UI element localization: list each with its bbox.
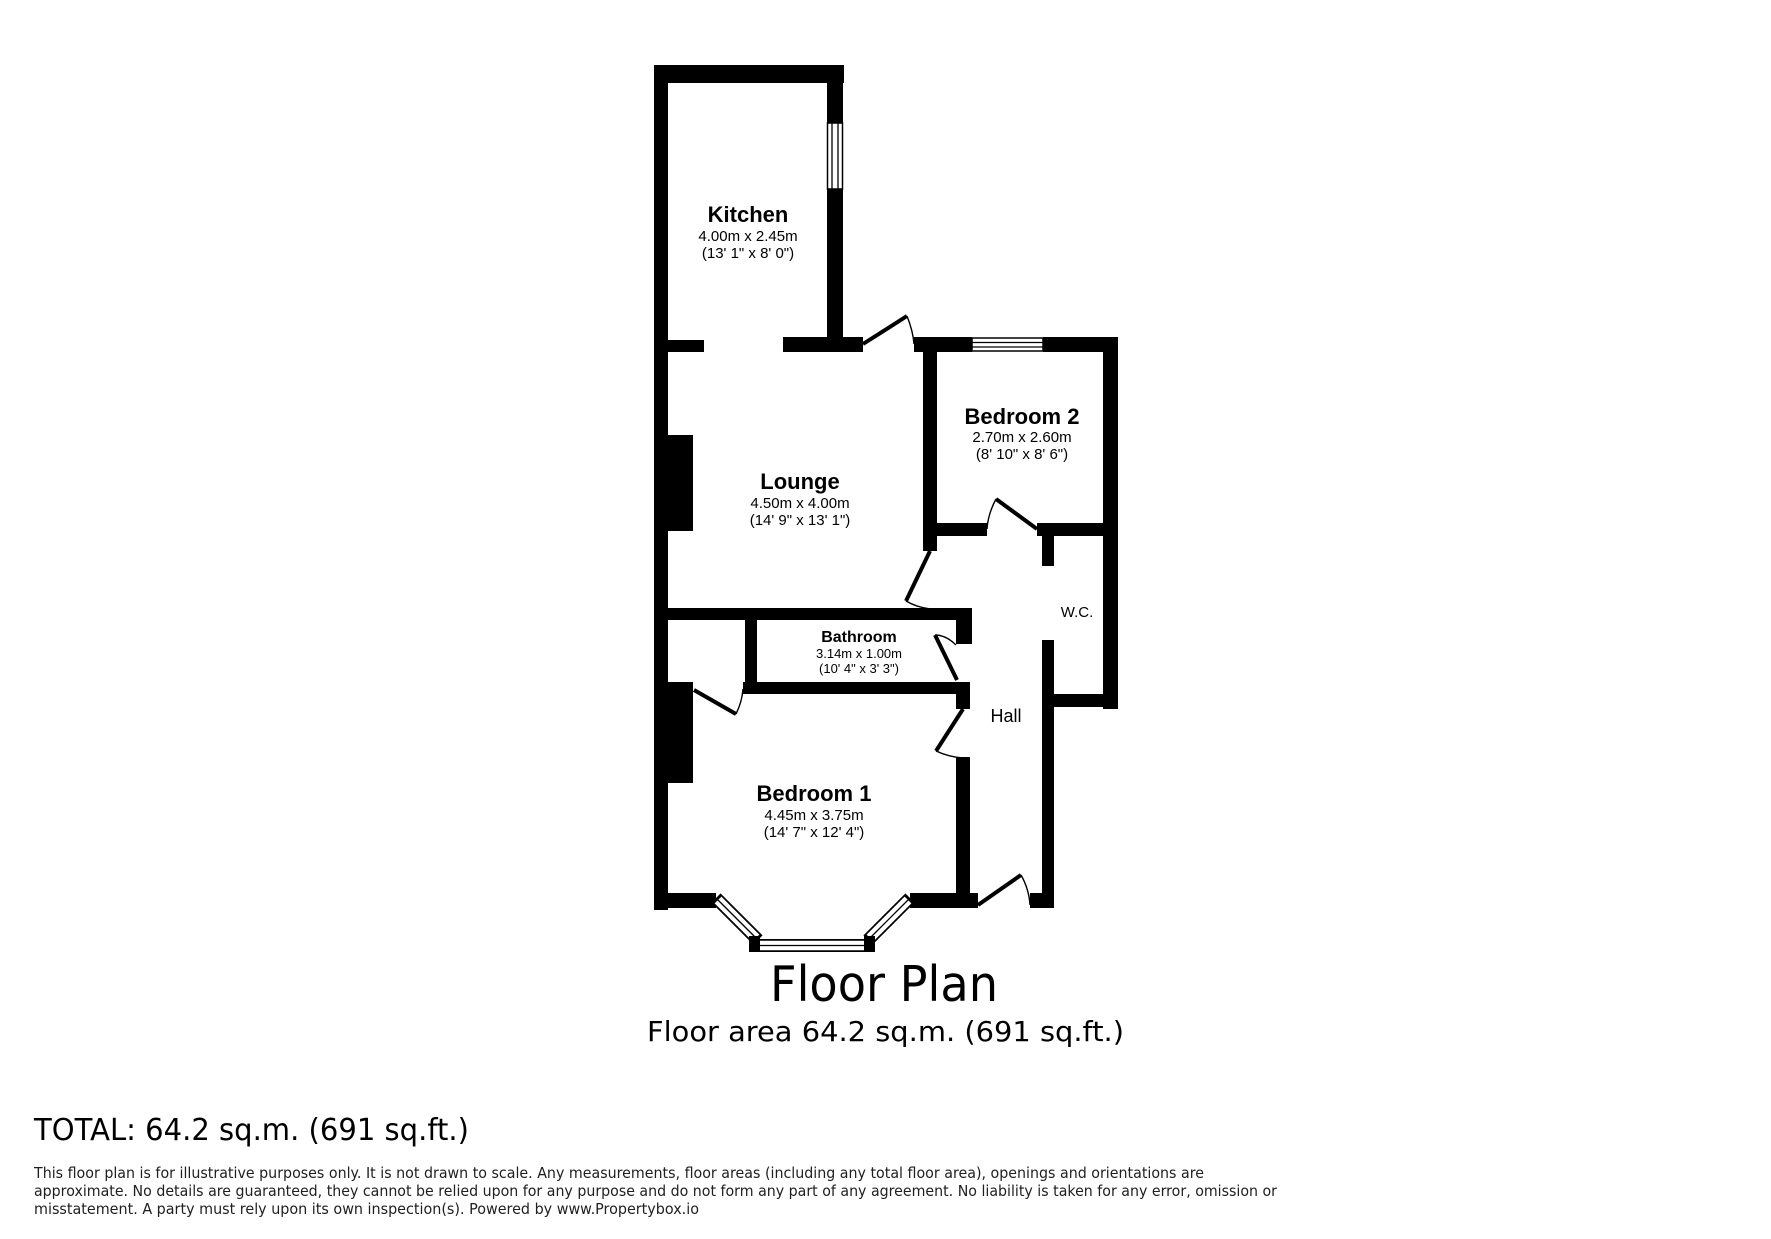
wall-segment <box>654 65 668 910</box>
bedroom1-door <box>936 709 963 758</box>
room-label-bedroom2: Bedroom 2 2.70m x 2.60m (8' 10" x 8' 6") <box>965 404 1080 463</box>
bay-window <box>716 898 910 952</box>
wall-segment <box>1042 536 1054 566</box>
room-label-kitchen: Kitchen 4.00m x 2.45m (13' 1" x 8' 0") <box>698 202 797 262</box>
room-label-bedroom1: Bedroom 1 4.45m x 3.75m (14' 7" x 12' 4"… <box>757 781 872 841</box>
room-name: Bedroom 2 <box>965 404 1080 429</box>
floor-area-subtitle: Floor area 64.2 sq.m. (691 sq.ft.) <box>647 1015 1124 1048</box>
lounge-exterior-door <box>863 316 914 344</box>
wall-segment <box>654 893 716 908</box>
door-arc <box>936 751 963 758</box>
room-dim-metric: 4.45m x 3.75m <box>764 807 863 824</box>
floor-plan-page: Kitchen 4.00m x 2.45m (13' 1" x 8' 0") L… <box>0 0 1771 1239</box>
wall-segment <box>923 527 937 551</box>
bay-window-line <box>869 899 909 939</box>
kitchen-window <box>828 123 843 189</box>
room-label-lounge: Lounge 4.50m x 4.00m (14' 9" x 13' 1") <box>750 469 851 529</box>
room-dim-imperial: (14' 7" x 12' 4") <box>764 824 865 841</box>
bay-window-jamb <box>864 936 875 952</box>
wall-segment <box>827 117 843 123</box>
room-name: Kitchen <box>708 202 789 227</box>
wall-segment <box>910 893 978 908</box>
room-dim-imperial: (10' 4" x 3' 3") <box>819 661 899 676</box>
wall-segment <box>1030 893 1054 908</box>
room-label-bathroom: Bathroom 3.14m x 1.00m (10' 4" x 3' 3") <box>816 629 902 676</box>
total-area-line: TOTAL: 64.2 sq.m. (691 sq.ft.) <box>33 1113 469 1148</box>
wall-segment <box>827 193 843 352</box>
wall-segment <box>956 682 970 709</box>
wall-segment <box>654 65 844 83</box>
wall-segment <box>668 608 965 620</box>
wall-segment <box>668 340 704 352</box>
wall-segment <box>956 608 972 644</box>
window-glass <box>972 338 1043 351</box>
wall-segment <box>914 337 970 352</box>
room-name: Bedroom 1 <box>757 781 872 806</box>
room-dim-imperial: (8' 10" x 8' 6") <box>976 446 1068 463</box>
wall-segment <box>956 757 970 893</box>
door-leaf <box>936 709 963 751</box>
bay-window-line <box>717 899 757 939</box>
room-name: Bathroom <box>821 629 897 646</box>
door-leaf <box>906 551 930 601</box>
lounge-hall-door <box>906 551 930 609</box>
chimney-breast-bedroom1 <box>654 682 693 783</box>
room-dim-metric: 3.14m x 1.00m <box>816 646 902 661</box>
door-leaf <box>694 690 736 714</box>
bedroom2-door <box>987 499 1037 529</box>
room-dim-metric: 4.00m x 2.45m <box>698 228 797 245</box>
disclaimer-line: misstatement. A party must rely upon its… <box>34 1200 699 1218</box>
wall-segment <box>783 337 863 352</box>
door-leaf <box>935 635 957 680</box>
room-dim-imperial: (13' 1" x 8' 0") <box>702 245 794 262</box>
disclaimer-line: This floor plan is for illustrative purp… <box>33 1164 1204 1182</box>
door-arc <box>736 689 743 714</box>
door-arc <box>906 601 930 609</box>
wall-segment <box>923 352 937 527</box>
disclaimer-line: approximate. No details are guaranteed, … <box>34 1182 1278 1200</box>
room-name: Lounge <box>760 469 839 494</box>
wall-segment <box>1042 640 1054 697</box>
door-leaf <box>863 316 907 344</box>
bedroom2-window <box>972 338 1043 351</box>
wall-segment <box>1042 694 1054 908</box>
walls <box>654 65 1118 910</box>
disclaimer: This floor plan is for illustrative purp… <box>33 1164 1278 1218</box>
bay-window-jamb <box>749 936 760 952</box>
room-dim-imperial: (14' 9" x 13' 1") <box>750 512 851 529</box>
bathroom-door <box>935 635 957 680</box>
wall-segment <box>745 620 757 687</box>
page-title: Floor Plan <box>770 956 998 1013</box>
closet-door <box>694 689 743 714</box>
floor-plan-canvas: Kitchen 4.00m x 2.45m (13' 1" x 8' 0") L… <box>0 0 1771 1239</box>
wall-segment <box>827 83 843 119</box>
door-arc <box>987 499 996 529</box>
entrance-door <box>978 875 1030 905</box>
wall-segment <box>966 337 972 352</box>
room-dim-metric: 4.50m x 4.00m <box>750 495 849 512</box>
door-arc <box>907 316 914 344</box>
door-arc <box>1021 875 1030 905</box>
room-dim-metric: 2.70m x 2.60m <box>972 429 1071 446</box>
room-label-hall: Hall <box>990 706 1021 726</box>
chimney-breast-lounge <box>666 435 693 531</box>
door-leaf <box>996 499 1037 529</box>
room-label-wc: W.C. <box>1061 604 1094 621</box>
door-leaf <box>978 875 1021 905</box>
wall-segment <box>743 682 965 694</box>
wall-segment <box>1037 523 1118 536</box>
window-glass <box>828 123 843 189</box>
